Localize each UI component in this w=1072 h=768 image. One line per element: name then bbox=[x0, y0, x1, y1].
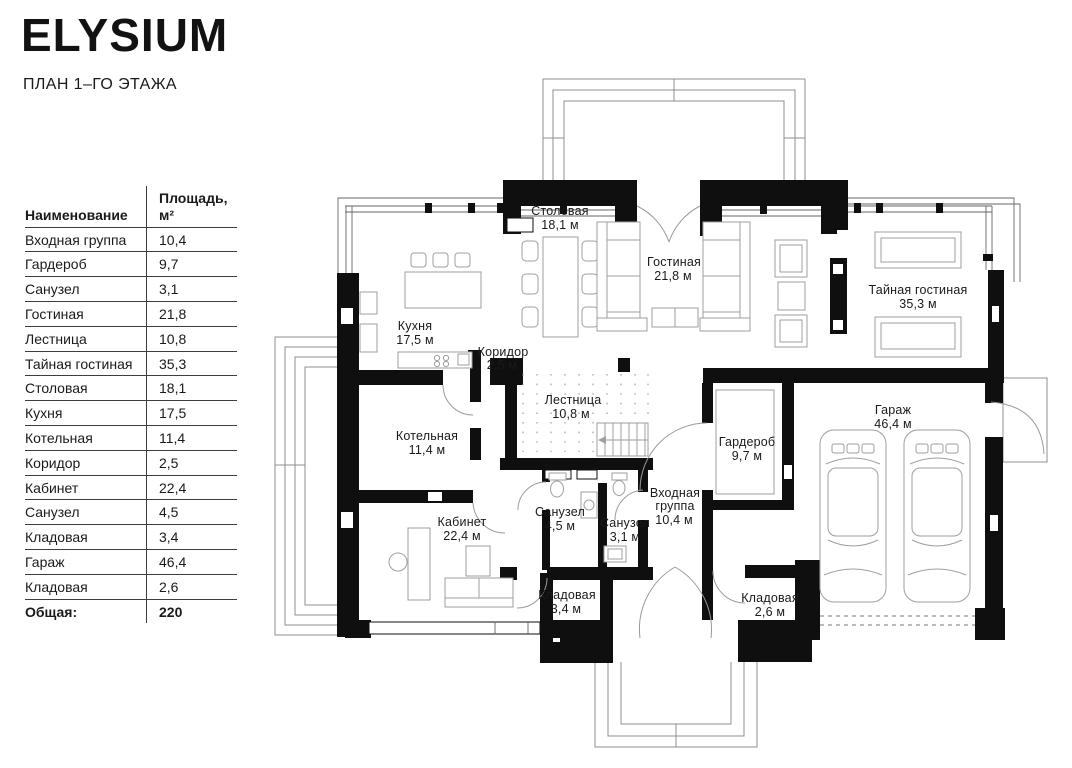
room-name-label: Лестница bbox=[545, 393, 602, 407]
floor-plan-drawing: Столовая 18,1 м Гостиная 21,8 м Тайная г… bbox=[0, 0, 1072, 768]
room-area-label: 17,5 м bbox=[396, 333, 434, 347]
terrace-top bbox=[543, 79, 805, 180]
room-area-label: 2,5 м bbox=[487, 358, 517, 372]
floor-plan-sheet: ELYSIUM ПЛАН 1–ГО ЭТАЖА Наименование Пло… bbox=[0, 0, 1072, 768]
room-area-label: 3,4 м bbox=[551, 602, 581, 616]
garage-cars bbox=[820, 430, 975, 625]
room-name-label: Котельная bbox=[396, 429, 458, 443]
room-name-label: Кабинет bbox=[438, 515, 487, 529]
room-area-label: 2,6 м bbox=[755, 605, 785, 619]
room-name-label: Гостиная bbox=[647, 255, 701, 269]
room-area-label: 18,1 м bbox=[541, 218, 579, 232]
room-area-label: 11,4 м bbox=[409, 443, 446, 457]
room-area-label: 22,4 м bbox=[443, 529, 481, 543]
garage-door-dashed bbox=[820, 616, 975, 625]
room-area-label: 10,8 м bbox=[552, 407, 590, 421]
terrace-left bbox=[275, 337, 345, 635]
room-area-label: 9,7 м bbox=[732, 449, 762, 463]
room-area-label: 10,4 м bbox=[655, 513, 693, 527]
room-name-label: Коридор bbox=[478, 345, 529, 359]
room-area-label: 4,5 м bbox=[545, 519, 575, 533]
dining-table bbox=[522, 237, 598, 337]
porch-bottom bbox=[595, 662, 757, 747]
room-name-label: Столовая bbox=[531, 204, 589, 218]
room-name-label: Кладовая bbox=[538, 588, 596, 602]
room-name-label: Санузел bbox=[535, 505, 585, 519]
room-name-label: Тайная гостиная bbox=[869, 283, 968, 297]
car bbox=[820, 430, 886, 602]
room-name-label: Гардероб bbox=[719, 435, 776, 449]
room-area-label: 35,3 м bbox=[899, 297, 937, 311]
car bbox=[904, 430, 970, 602]
room-area-label: 46,4 м bbox=[874, 417, 912, 431]
room-name-label: Входная bbox=[650, 486, 700, 500]
porch-side-garage bbox=[1003, 378, 1047, 462]
room-name-label: Кладовая bbox=[741, 591, 799, 605]
room-name-label: Санузел bbox=[600, 516, 650, 530]
room-area-label: 3,1 м bbox=[610, 530, 640, 544]
room-name-label: Гараж bbox=[875, 403, 912, 417]
room-name-label: Кухня bbox=[398, 319, 432, 333]
room-area-label: 21,8 м bbox=[654, 269, 692, 283]
kitchen-furniture bbox=[360, 253, 481, 368]
room-name-label: группа bbox=[655, 499, 694, 513]
living-room-furniture bbox=[597, 222, 807, 347]
